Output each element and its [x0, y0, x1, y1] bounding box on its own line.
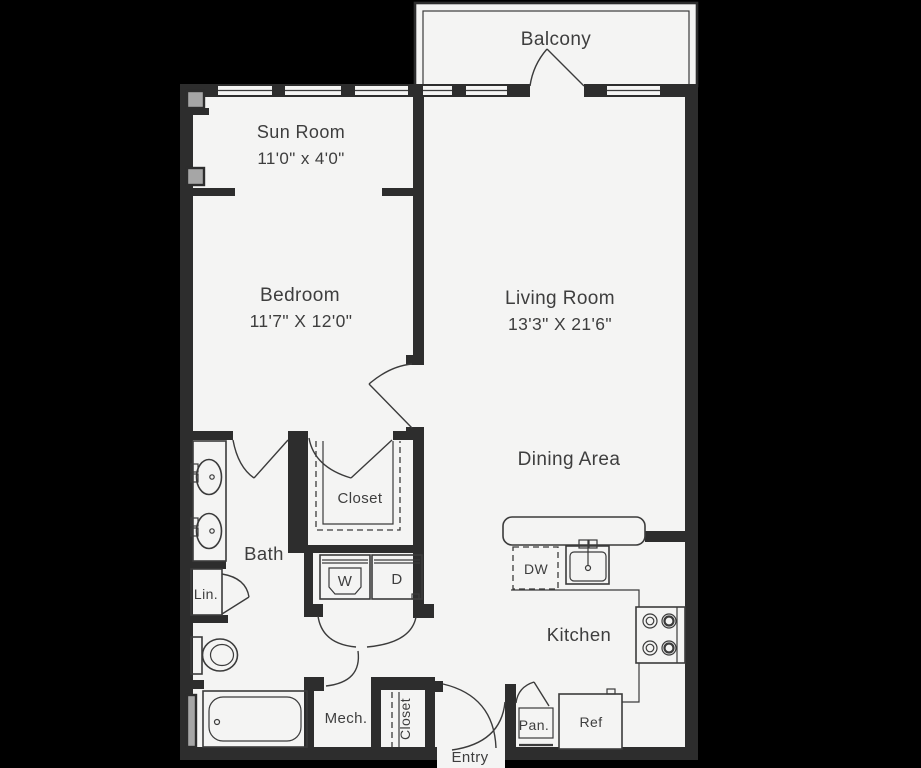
- wall-bottom-left: [180, 747, 437, 760]
- living-room-label: Living Room: [505, 288, 615, 309]
- window: [218, 86, 272, 95]
- balcony-door-opening: [530, 84, 584, 97]
- pantry-west-wall: [505, 684, 516, 747]
- refrigerator-label: Ref: [580, 714, 603, 730]
- entry-closet-west-wall: [371, 690, 381, 747]
- dining-area-label: Dining Area: [518, 449, 621, 470]
- door-jamb: [304, 677, 324, 691]
- linen-label: Lin.: [194, 586, 218, 602]
- wall-right: [685, 84, 698, 760]
- sun-room-dims: 11'0" x 4'0": [257, 149, 344, 168]
- column: [187, 168, 204, 185]
- window: [285, 86, 341, 95]
- mech-west-wall: [304, 691, 314, 747]
- stove-icon: [636, 607, 685, 663]
- floor-plan-canvas: Balcony Sun Room 11'0" x 4'0" Bedroom 11…: [0, 0, 921, 768]
- sunroom-divider-left: [180, 188, 235, 196]
- sun-room-label: Sun Room: [257, 122, 345, 142]
- entry-closet-east-wall: [425, 690, 435, 747]
- bedroom-label: Bedroom: [260, 285, 340, 306]
- window: [607, 86, 660, 95]
- door-jamb: [304, 604, 323, 617]
- window: [466, 86, 507, 95]
- column-stub: [187, 108, 209, 115]
- tub-chase-column: [187, 695, 196, 747]
- unit-floor: [180, 84, 698, 760]
- living-room-dims: 13'3" X 21'6": [508, 314, 612, 334]
- linen-south-wall: [186, 615, 228, 623]
- pantry-label: Pan.: [519, 717, 549, 733]
- door-jamb: [406, 355, 424, 365]
- closet-jamb: [393, 431, 413, 440]
- dishwasher-label: DW: [524, 561, 549, 577]
- floor-plan: Balcony Sun Room 11'0" x 4'0" Bedroom 11…: [0, 0, 921, 768]
- washer-label: W: [338, 573, 353, 590]
- kitchen-peninsula-counter: [503, 517, 645, 545]
- hall-west-wall: [304, 553, 313, 608]
- door-jamb: [424, 604, 434, 618]
- mech-label: Mech.: [325, 710, 368, 727]
- door-jamb: [435, 681, 443, 692]
- central-wall-upper: [413, 97, 424, 355]
- column: [187, 91, 204, 108]
- bath-label: Bath: [244, 543, 284, 564]
- kitchen-label: Kitchen: [547, 624, 612, 645]
- window: [355, 86, 408, 95]
- bedroom-dims: 11'7" X 12'0": [250, 311, 353, 331]
- bath-closet-wall: [288, 431, 308, 553]
- balcony-label: Balcony: [521, 29, 591, 50]
- bath-north-wall: [180, 431, 233, 440]
- tub-north-stub: [186, 680, 204, 689]
- kitchen-counter-stub-wall: [645, 531, 685, 542]
- entry-closet-north-wall: [371, 677, 435, 690]
- window: [423, 86, 452, 95]
- vanity-south-wall: [186, 561, 226, 569]
- laundry-north-wall: [308, 545, 413, 553]
- entry-closet-label: Closet: [397, 698, 413, 740]
- closet-label: Closet: [338, 490, 383, 507]
- dryer-label: D: [391, 571, 402, 588]
- entry-label: Entry: [451, 749, 488, 766]
